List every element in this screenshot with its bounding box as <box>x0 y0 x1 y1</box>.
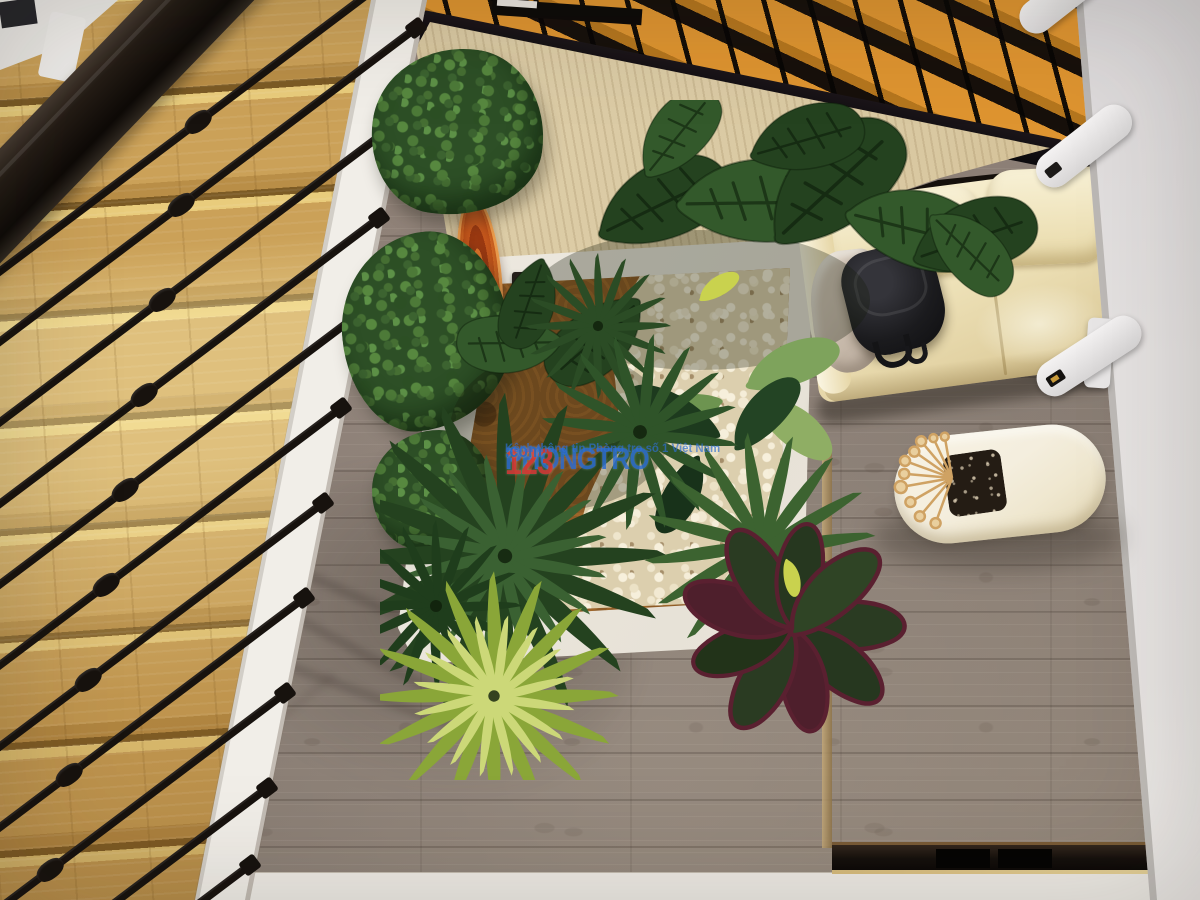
dried-pampas-flowers <box>894 432 957 530</box>
console-light-strip <box>832 870 1154 874</box>
listing-photo-room-overhead: PHONGTRO123.com Kênh thông tin Phòng trọ… <box>0 0 1200 900</box>
indoor-garden-plants <box>380 100 1040 780</box>
landing-dark-fixture <box>0 0 38 28</box>
bottom-wall-base <box>232 872 1200 900</box>
dark-console-shelf <box>832 842 1154 872</box>
